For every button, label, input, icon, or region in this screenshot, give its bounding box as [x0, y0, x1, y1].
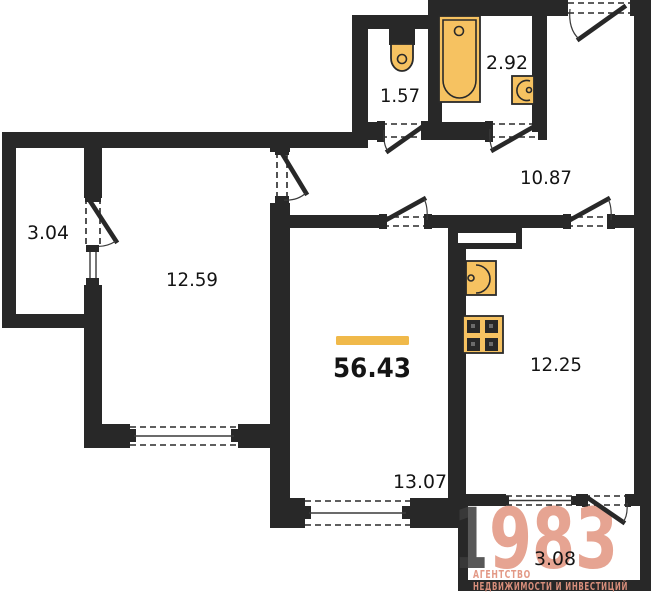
- wall-segment: [270, 498, 305, 528]
- bathtub-icon: [439, 16, 480, 102]
- wall-segment: [2, 132, 16, 328]
- window-bedroom: [127, 427, 240, 445]
- toilet-icon: [389, 29, 415, 71]
- area-label-kitchen: 12.25: [530, 354, 582, 376]
- total-area-label: 56.43: [333, 353, 411, 384]
- wall-segment: [2, 132, 368, 148]
- accent-bar: [336, 336, 409, 345]
- logo-tagline-2: НЕДВИЖИМОСТИ И ИНВЕСТИЦИЙ: [473, 580, 628, 593]
- floor-plan-canvas: 1 983 АГЕНТСТВО НЕДВИЖИМОСТИ И ИНВЕСТИЦИ…: [0, 0, 651, 600]
- wall-segment: [84, 424, 130, 448]
- bath-sink-icon: [512, 76, 534, 104]
- wall-segment: [270, 203, 290, 524]
- door-wc: [381, 124, 425, 151]
- wall-segment: [84, 132, 102, 198]
- area-label-living-room: 13.07: [393, 471, 447, 493]
- door-bedroom: [277, 152, 306, 203]
- wall-segment: [538, 122, 547, 140]
- wall-segment: [84, 285, 102, 448]
- total-area: 56.43: [333, 336, 411, 384]
- stove-icon: [463, 316, 503, 353]
- vent-duct-icon: [455, 230, 519, 246]
- wall-segment: [448, 228, 466, 500]
- wall-segment: [634, 0, 651, 506]
- window-living-room: [302, 501, 411, 525]
- area-label-hallway: 10.87: [520, 167, 572, 189]
- wall-segment: [532, 0, 547, 132]
- door-bathroom: [489, 124, 538, 150]
- area-label-bathroom: 2.92: [486, 52, 528, 74]
- wall-segment: [270, 215, 383, 228]
- wall-segment: [428, 215, 567, 228]
- wall-segment: [640, 506, 651, 591]
- door-kitchen: [567, 199, 612, 226]
- door-entrance: [568, 3, 630, 39]
- area-label-balcony-left: 3.04: [27, 222, 69, 244]
- door-living-room: [383, 199, 428, 226]
- area-label-bedroom: 12.59: [166, 269, 218, 291]
- wall-segment: [425, 122, 489, 140]
- window-balcony-left: [86, 245, 99, 285]
- area-label-wc: 1.57: [380, 85, 420, 107]
- floor-plan: 1 983 АГЕНТСТВО НЕДВИЖИМОСТИ И ИНВЕСТИЦИ…: [0, 0, 651, 600]
- area-label-balcony-bottom: 3.08: [534, 548, 576, 570]
- door-balcony-left: [86, 198, 116, 246]
- kitchen-sink-icon: [466, 261, 496, 295]
